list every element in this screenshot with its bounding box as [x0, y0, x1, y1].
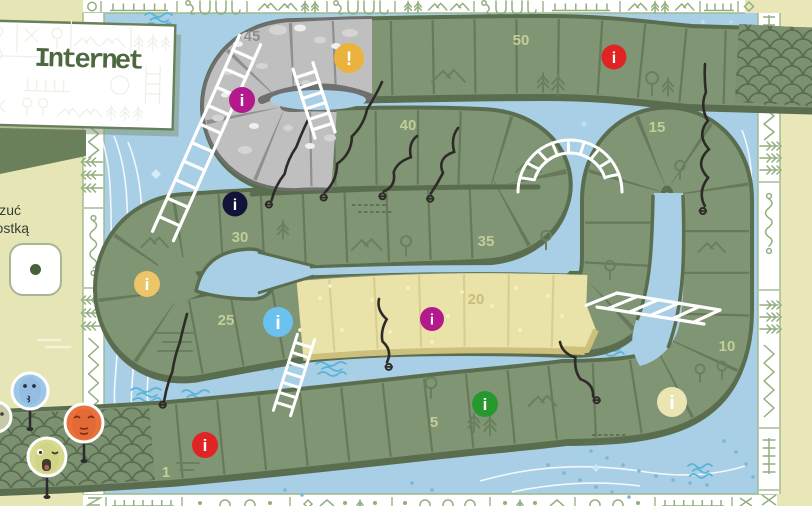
svg-text:30: 30 [232, 229, 249, 246]
svg-text:i: i [240, 91, 245, 110]
svg-text:5: 5 [430, 414, 438, 431]
svg-text:50: 50 [513, 32, 530, 49]
svg-text:i: i [669, 393, 674, 414]
svg-text:15: 15 [649, 119, 666, 136]
svg-text:rzuć: rzuć [0, 202, 21, 218]
svg-text:35: 35 [478, 233, 495, 250]
svg-text:i: i [233, 197, 237, 214]
svg-text:Internet: Internet [34, 45, 143, 78]
svg-text:i: i [612, 50, 616, 67]
svg-text:!: ! [346, 49, 352, 70]
svg-text:20: 20 [468, 291, 485, 308]
svg-text:45: 45 [244, 28, 261, 45]
svg-text:10: 10 [719, 338, 736, 355]
svg-text:1: 1 [162, 464, 170, 481]
svg-text:kostką: kostką [0, 220, 29, 236]
svg-text:i: i [145, 275, 150, 294]
svg-text:i: i [275, 313, 280, 334]
svg-text:i: i [203, 436, 208, 455]
svg-text:40: 40 [400, 117, 417, 134]
svg-text:25: 25 [218, 312, 235, 329]
svg-text:i: i [483, 395, 488, 414]
svg-text:i: i [430, 311, 434, 328]
